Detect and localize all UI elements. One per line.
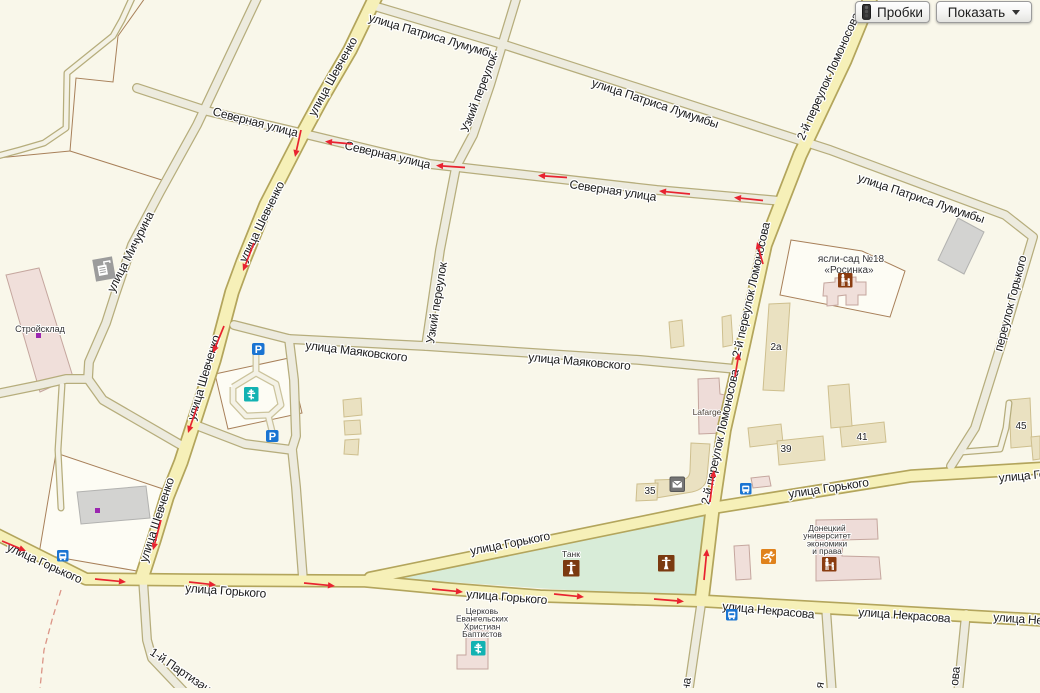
svg-text:2а: 2а [770, 342, 782, 353]
svg-text:Баптистов: Баптистов [462, 629, 502, 639]
svg-text:35: 35 [644, 486, 656, 497]
svg-text:и права: и права [812, 546, 842, 556]
svg-text:P: P [269, 431, 276, 443]
svg-text:ова: ова [947, 666, 963, 687]
svg-text:Стройсклад: Стройсклад [15, 324, 65, 334]
svg-text:39: 39 [780, 444, 792, 455]
svg-text:P: P [255, 344, 262, 356]
svg-text:Lafarge: Lafarge [693, 407, 722, 417]
svg-text:41: 41 [856, 432, 868, 443]
svg-text:ясли-сад №18: ясли-сад №18 [818, 254, 885, 265]
svg-text:45: 45 [1015, 421, 1027, 432]
svg-text:Танк: Танк [562, 549, 580, 559]
